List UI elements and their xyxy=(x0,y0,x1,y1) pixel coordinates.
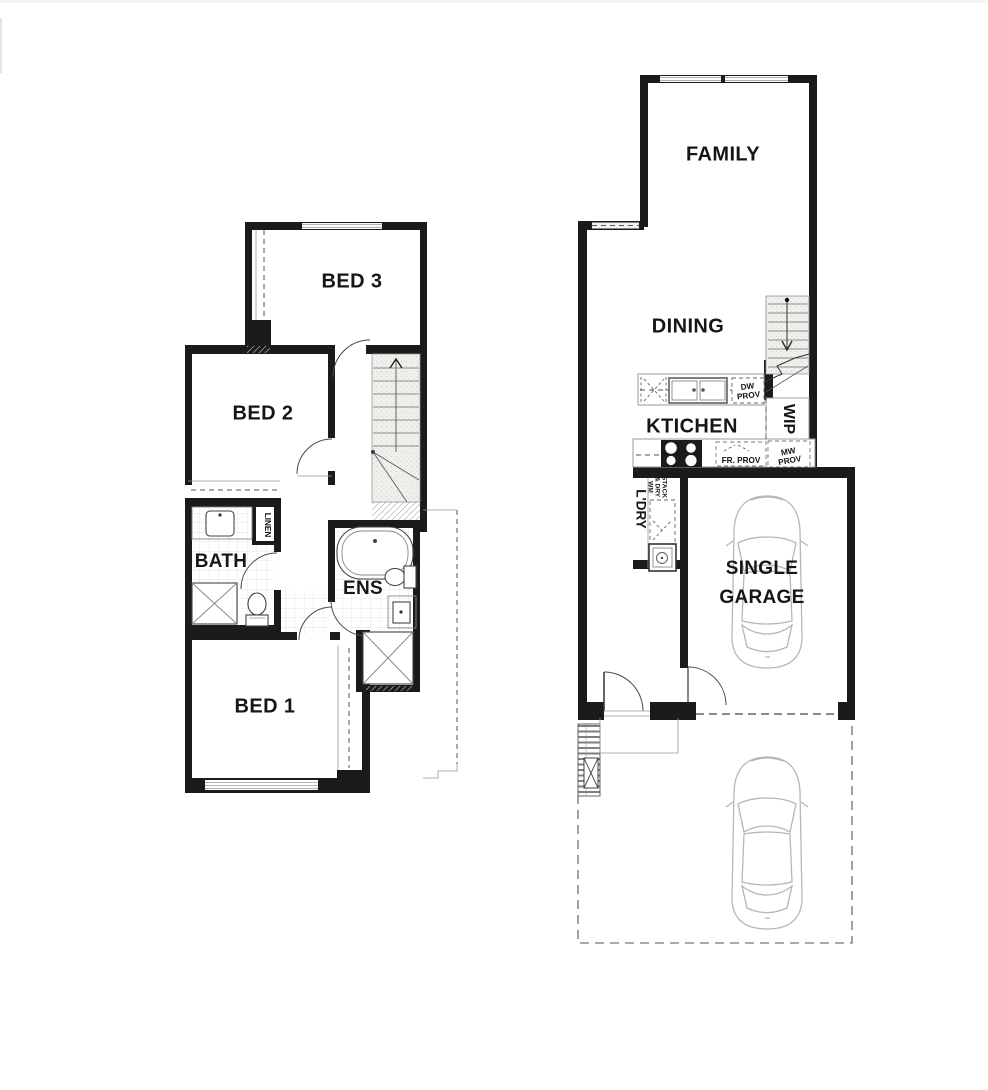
room-label-kitchen: KTICHEN xyxy=(646,415,738,437)
door-swing xyxy=(297,439,332,474)
scan-artifact xyxy=(0,18,2,73)
car-in-driveway-icon xyxy=(726,757,808,929)
room-label-linen: LINEN xyxy=(263,513,272,538)
car-in-garage-icon xyxy=(726,496,808,668)
porch-outline xyxy=(600,718,678,753)
room-label-bed1: BED 1 xyxy=(235,695,296,717)
room-label-dining: DINING xyxy=(652,315,724,337)
lower-roof-outline xyxy=(423,510,457,778)
upper-floor-plan: BED 3 BED 2 BATH LINEN ENS BED 1 xyxy=(185,222,457,793)
scan-artifact xyxy=(0,0,988,3)
driveway xyxy=(578,720,852,943)
ground-floor-plan: FAMILY DINING KTICHEN WIP L'DRY SINGLE G… xyxy=(578,75,855,943)
room-label-wip: WIP xyxy=(780,404,797,435)
hall-tiles xyxy=(281,590,328,635)
floor-plan-page: BED 3 BED 2 BATH LINEN ENS BED 1 xyxy=(0,0,988,1090)
room-label-laundry: L'DRY xyxy=(633,489,648,528)
floor-plan-drawing: BED 3 BED 2 BATH LINEN ENS BED 1 xyxy=(0,0,988,1090)
entry-door xyxy=(604,672,643,711)
stairs-up xyxy=(371,354,420,520)
svg-text:STACK: STACK xyxy=(660,476,667,498)
door-swing xyxy=(333,340,370,377)
room-label-garage-line1: SINGLE xyxy=(726,558,799,579)
toilet-icon xyxy=(385,566,416,588)
room-label-family: FAMILY xyxy=(686,143,760,165)
porch-steps xyxy=(578,718,678,796)
svg-text:& DRY: & DRY xyxy=(653,477,660,498)
toilet-icon xyxy=(246,593,268,626)
svg-text:WM: WM xyxy=(646,481,653,493)
island-sink-cabinet xyxy=(669,378,727,403)
laundry-tub xyxy=(649,544,676,571)
room-label-ens: ENS xyxy=(343,578,383,599)
room-label-bed3: BED 3 xyxy=(322,270,383,292)
garage-internal-door xyxy=(688,667,726,705)
room-label-bath: BATH xyxy=(195,551,248,572)
room-label-garage-line2: GARAGE xyxy=(719,587,804,608)
annotation-fr-prov: FR. PROV xyxy=(722,456,761,465)
driveway-boundary xyxy=(578,720,852,943)
room-label-bed2: BED 2 xyxy=(233,402,294,424)
